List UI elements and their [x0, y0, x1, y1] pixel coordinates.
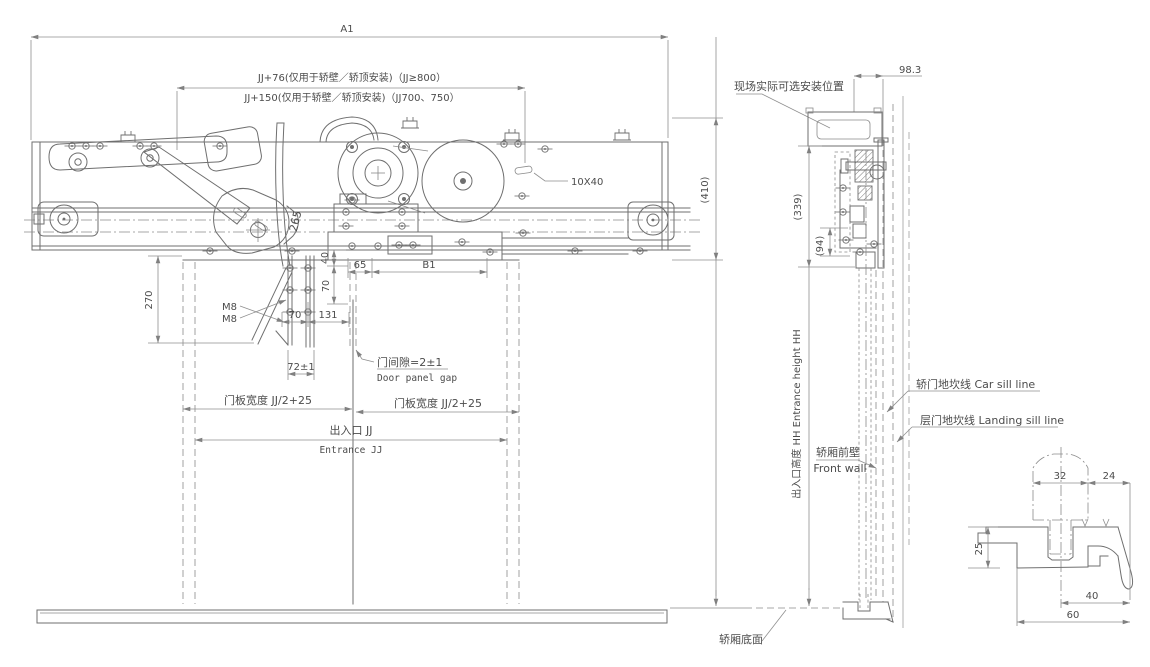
dim-24: 24 [1103, 471, 1116, 482]
mount-position-callout: 现场实际可选安装位置 [734, 79, 844, 128]
side-sill-section [843, 594, 893, 622]
landing-sill-line-label: 层门地坎线 Landing sill line [920, 413, 1064, 427]
dim-98-3-group: 98.3 [854, 65, 922, 146]
panel-width-left: 门板宽度 JJ/2+25 [224, 393, 312, 407]
side-bottom: 轿厢底面 [670, 594, 893, 646]
dim-jj76: JJ+76(仅用于轿壁／轿顶安装)（JJ≥800） [257, 71, 446, 84]
drawing-canvas: A1 JJ+76(仅用于轿壁／轿顶安装)（JJ≥800） JJ+150(仅用于轿… [0, 0, 1150, 667]
front-wall-en: Front wall [813, 462, 866, 475]
dim-265: 265 [287, 209, 305, 233]
side-dimensions: (339) (94) 出入口高度 HH Entrance height HH [790, 146, 855, 606]
car-bottom-label: 轿厢底面 [719, 632, 763, 646]
dim-98-3: 98.3 [899, 65, 921, 76]
sill-dimensions: 32 24 25 40 60 [968, 471, 1130, 626]
dim-410-group: (410) [672, 37, 723, 606]
door-operator-header: 10X40 [24, 117, 700, 266]
slot-hole-callout: 10X40 [515, 166, 604, 236]
mounting-clip [503, 129, 521, 140]
side-labels: 轿门地坎线 Car sill line 层门地坎线 Landing sill l… [813, 377, 1064, 475]
label-10x40: 10X40 [571, 177, 603, 188]
vane-lower-bracket [252, 256, 316, 347]
entrance-height-label: 出入口高度 HH Entrance height HH [790, 329, 803, 498]
panel-width-right: 门板宽度 JJ/2+25 [394, 396, 482, 410]
car-sill-line-label: 轿门地坎线 Car sill line [916, 377, 1035, 391]
crossbeam-section [806, 108, 882, 146]
entrance-cn: 出入口 JJ [330, 423, 373, 437]
label-m8-2: M8 [222, 314, 237, 325]
car-floor-sill [37, 610, 667, 623]
side-mechanism [835, 138, 888, 268]
dim-25: 25 [974, 543, 985, 556]
dim-a1: A1 [340, 24, 353, 35]
elevator-door-operator-drawing: A1 JJ+76(仅用于轿壁／轿顶安装)（JJ≥800） JJ+150(仅用于轿… [0, 0, 1150, 667]
driven-pulley [422, 140, 504, 222]
dim-40: 40 [1086, 591, 1099, 602]
door-clutch-linkage [49, 125, 298, 253]
belt-tension-pulley [34, 202, 98, 236]
door-motor [320, 117, 418, 213]
dim-70: 70 [289, 310, 302, 321]
dim-jj150: JJ+150(仅用于轿壁／轿顶安装)（JJ700、750） [243, 91, 459, 104]
side-view: 现场实际可选安装位置 98.3 [670, 65, 1064, 646]
mounting-clip [401, 117, 419, 128]
dim-60: 60 [1067, 610, 1080, 621]
dim-270: 270 [144, 290, 155, 309]
sill-detail-view: 32 24 25 40 60 [968, 447, 1133, 626]
front-view: A1 JJ+76(仅用于轿壁／轿顶安装)（JJ≥800） JJ+150(仅用于轿… [24, 24, 723, 623]
entrance-en: Entrance JJ [320, 445, 383, 456]
dim-40: 40 [320, 252, 331, 264]
dim-72: 72±1 [287, 362, 314, 373]
front-wall-cn: 轿厢前壁 [816, 445, 860, 459]
door-shoe-profile [1033, 454, 1088, 554]
dim-32: 32 [1054, 471, 1067, 482]
dim-94: (94) [815, 236, 826, 257]
dim-65: 65 [354, 260, 367, 271]
mount-position-label: 现场实际可选安装位置 [734, 79, 844, 93]
door-gap-cn: 门间隙=2±1 [377, 355, 442, 369]
dim-b1: B1 [422, 260, 435, 271]
dim-339: (339) [793, 193, 804, 220]
dim-70-vertical: 70 [321, 280, 332, 292]
door-gap-en: Door panel gap [377, 373, 457, 384]
dim-410: (410) [700, 176, 711, 203]
label-m8-1: M8 [222, 302, 237, 313]
mounting-clip [613, 129, 631, 140]
dim-131: 131 [318, 310, 337, 321]
